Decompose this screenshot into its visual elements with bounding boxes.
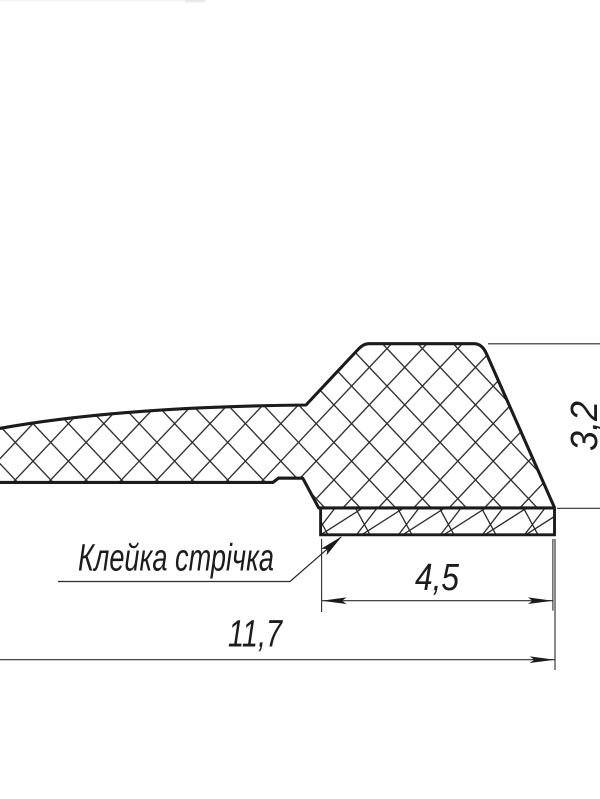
svg-text:3,2: 3,2 (564, 401, 600, 451)
svg-text:4,5: 4,5 (415, 557, 460, 599)
svg-text:11,7: 11,7 (228, 614, 283, 656)
svg-text:Клейка стрічка: Клейка стрічка (78, 538, 274, 580)
